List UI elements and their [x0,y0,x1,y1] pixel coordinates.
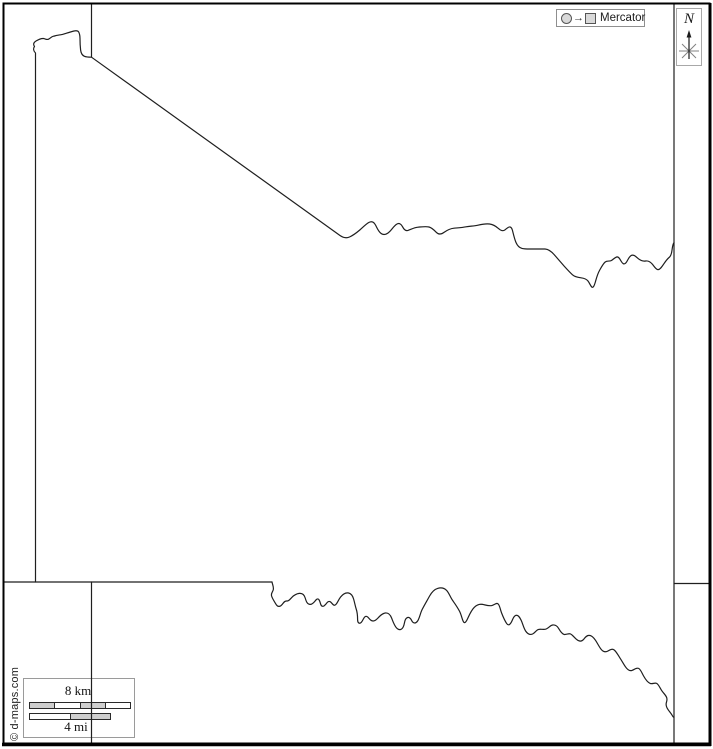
scale-segment [55,703,80,708]
globe-circle-icon [561,13,572,24]
scale-segment [81,703,106,708]
county-south-river-outline [271,582,674,717]
compass-north-label: N [677,12,701,27]
projection-label: Mercator [600,12,645,24]
compass-rose: N [676,8,702,66]
compass-star-icon [677,27,701,63]
arrow-right-icon: → [573,13,584,24]
scale-bar: 8 km 4 mi [23,678,135,738]
map-credit: © d-maps.com [9,667,21,741]
map-frame [2,3,711,746]
scale-segment [30,703,55,708]
projection-legend: → Mercator [556,9,645,27]
county-west-north-outline [34,31,674,582]
map-outline-layer [0,0,713,749]
map-canvas: → Mercator N 8 km 4 mi © d-maps.com [0,0,713,749]
scale-km-label: 8 km [24,683,132,699]
scale-mi-label: 4 mi [24,719,128,735]
scale-bar-km [29,702,131,709]
projected-square-icon [585,13,596,24]
scale-segment [106,703,130,708]
